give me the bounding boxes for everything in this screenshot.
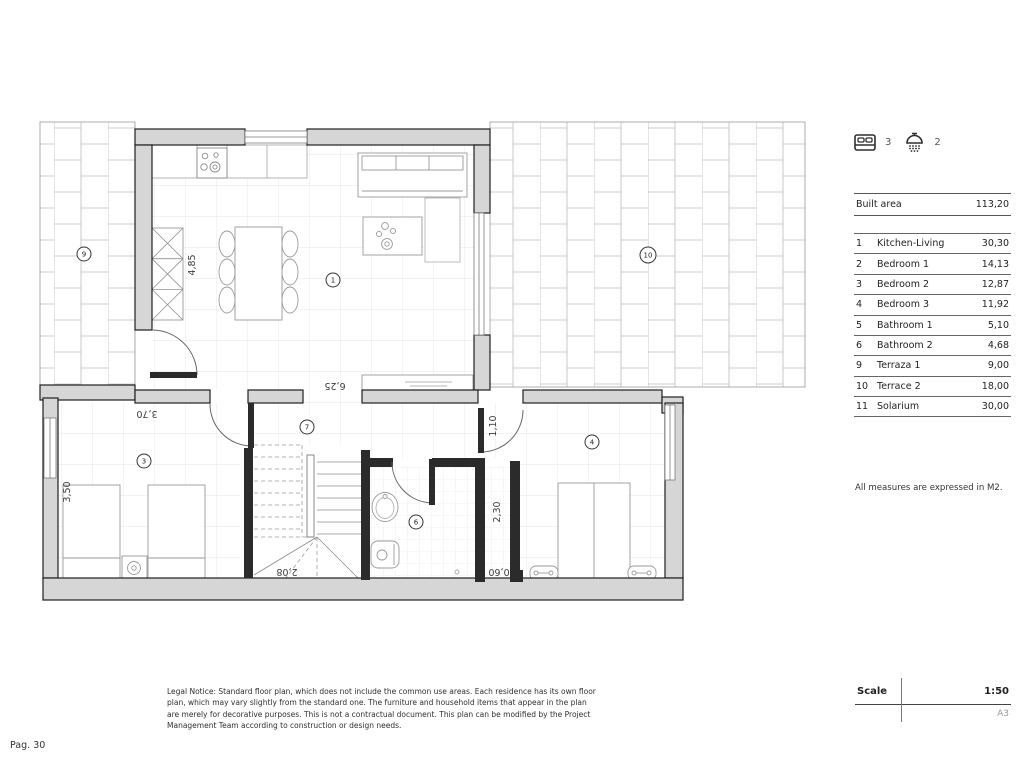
room-area: 4,68	[988, 340, 1009, 351]
room-no: 6	[856, 340, 877, 351]
pantry-unit	[152, 228, 183, 320]
room-name: Bedroom 2	[877, 279, 982, 290]
room-area: 11,92	[982, 299, 1009, 310]
scale-label: Scale	[857, 686, 887, 697]
room-name: Bedroom 3	[877, 299, 982, 310]
table-row: 6Bathroom 24,68	[854, 335, 1011, 355]
table-row: 5Bathroom 15,10	[854, 315, 1011, 335]
dim-closet-depth: 2,30	[492, 501, 503, 522]
marker-bathroom2: 6	[414, 519, 419, 527]
room-no: 5	[856, 320, 877, 331]
dim-bedroom2-depth: 3,50	[62, 481, 73, 502]
room-name: Bathroom 1	[877, 320, 988, 331]
floor-plan: 4,85 6,25 3,70 3,50 1,10 2,30 0,60 2,08 …	[30, 110, 820, 615]
bedroom-count: 3	[883, 137, 897, 148]
shower-icon	[904, 132, 925, 152]
room-name: Bedroom 1	[877, 259, 982, 270]
room-name: Kitchen-Living	[877, 238, 982, 249]
room-schedule-table: 1Kitchen-Living30,30 2Bedroom 114,13 3Be…	[854, 233, 1011, 417]
stove-hob	[197, 148, 227, 178]
marker-bedroom3: 4	[590, 439, 595, 447]
built-area-value: 113,20	[976, 199, 1009, 210]
marker-terrace2: 10	[644, 252, 653, 260]
summary-panel: 3 2 Built area 113,20 1Kitchen-Living30,…	[854, 130, 1011, 417]
room-no: 4	[856, 299, 877, 310]
dim-kitchen-width: 4,85	[187, 254, 198, 275]
room-area: 9,00	[988, 360, 1009, 371]
room-no: 9	[856, 360, 877, 371]
kitchen-counter	[152, 145, 307, 178]
legal-notice: Legal Notice: Standard floor plan, which…	[167, 686, 599, 731]
room-area: 5,10	[988, 320, 1009, 331]
scale-value: 1:50	[984, 686, 1009, 697]
dim-bedroom2-width: 3,70	[136, 408, 157, 419]
room-area: 30,00	[982, 401, 1009, 412]
dim-hall-door: 1,10	[488, 415, 499, 436]
built-area-label: Built area	[856, 199, 976, 210]
dim-stairs: 2,08	[276, 566, 297, 577]
table-row: 2Bedroom 114,13	[854, 253, 1011, 273]
room-no: 11	[856, 401, 877, 412]
sheet-size: A3	[855, 705, 1011, 723]
table-row: 1Kitchen-Living30,30	[854, 233, 1011, 253]
table-row: 3Bedroom 212,87	[854, 274, 1011, 294]
room-name: Solarium	[877, 401, 982, 412]
dining-set	[219, 227, 298, 320]
table-row: 11Solarium30,00	[854, 396, 1011, 416]
marker-bedroom2: 3	[142, 458, 146, 466]
bathroom-count: 2	[932, 137, 946, 148]
room-no: 1	[856, 238, 877, 249]
dim-closet-width: 0,60	[488, 566, 509, 577]
units-note: All measures are expressed in M2.	[855, 483, 1015, 493]
room-area: 14,13	[982, 259, 1009, 270]
dim-living-width: 6,25	[324, 380, 345, 391]
room-area: 18,00	[982, 381, 1009, 392]
document-page: 4,85 6,25 3,70 3,50 1,10 2,30 0,60 2,08 …	[0, 0, 1024, 768]
built-area-row: Built area 113,20	[854, 194, 1011, 215]
scale-block: Scale 1:50 A3	[855, 678, 1011, 723]
page-number: Pag. 30	[10, 740, 45, 751]
marker-terrace1: 9	[82, 251, 86, 259]
marker-hallway: 7	[305, 424, 309, 432]
room-area: 30,30	[982, 238, 1009, 249]
room-no: 2	[856, 259, 877, 270]
room-no: 10	[856, 381, 877, 392]
marker-kitchen-living: 1	[331, 277, 335, 285]
table-row: 9Terraza 19,00	[854, 355, 1011, 375]
bed-icon	[854, 134, 876, 151]
room-name: Bathroom 2	[877, 340, 988, 351]
table-row: 4Bedroom 311,92	[854, 294, 1011, 314]
sofa	[358, 153, 467, 197]
table-row: 10Terrace 218,00	[854, 376, 1011, 396]
built-area-table: Built area 113,20	[854, 193, 1011, 216]
room-name: Terraza 1	[877, 360, 988, 371]
room-name: Terrace 2	[877, 381, 982, 392]
unit-stats: 3 2	[854, 130, 1011, 154]
room-area: 12,87	[982, 279, 1009, 290]
scale-divider	[901, 678, 902, 722]
room-no: 3	[856, 279, 877, 290]
